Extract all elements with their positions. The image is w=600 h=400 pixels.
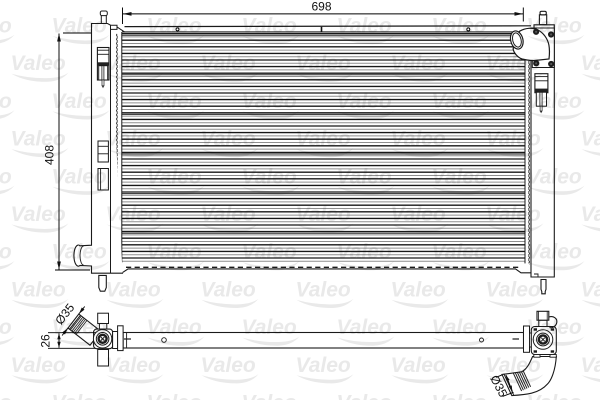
svg-text:26: 26	[39, 334, 53, 348]
svg-text:698: 698	[311, 0, 331, 13]
